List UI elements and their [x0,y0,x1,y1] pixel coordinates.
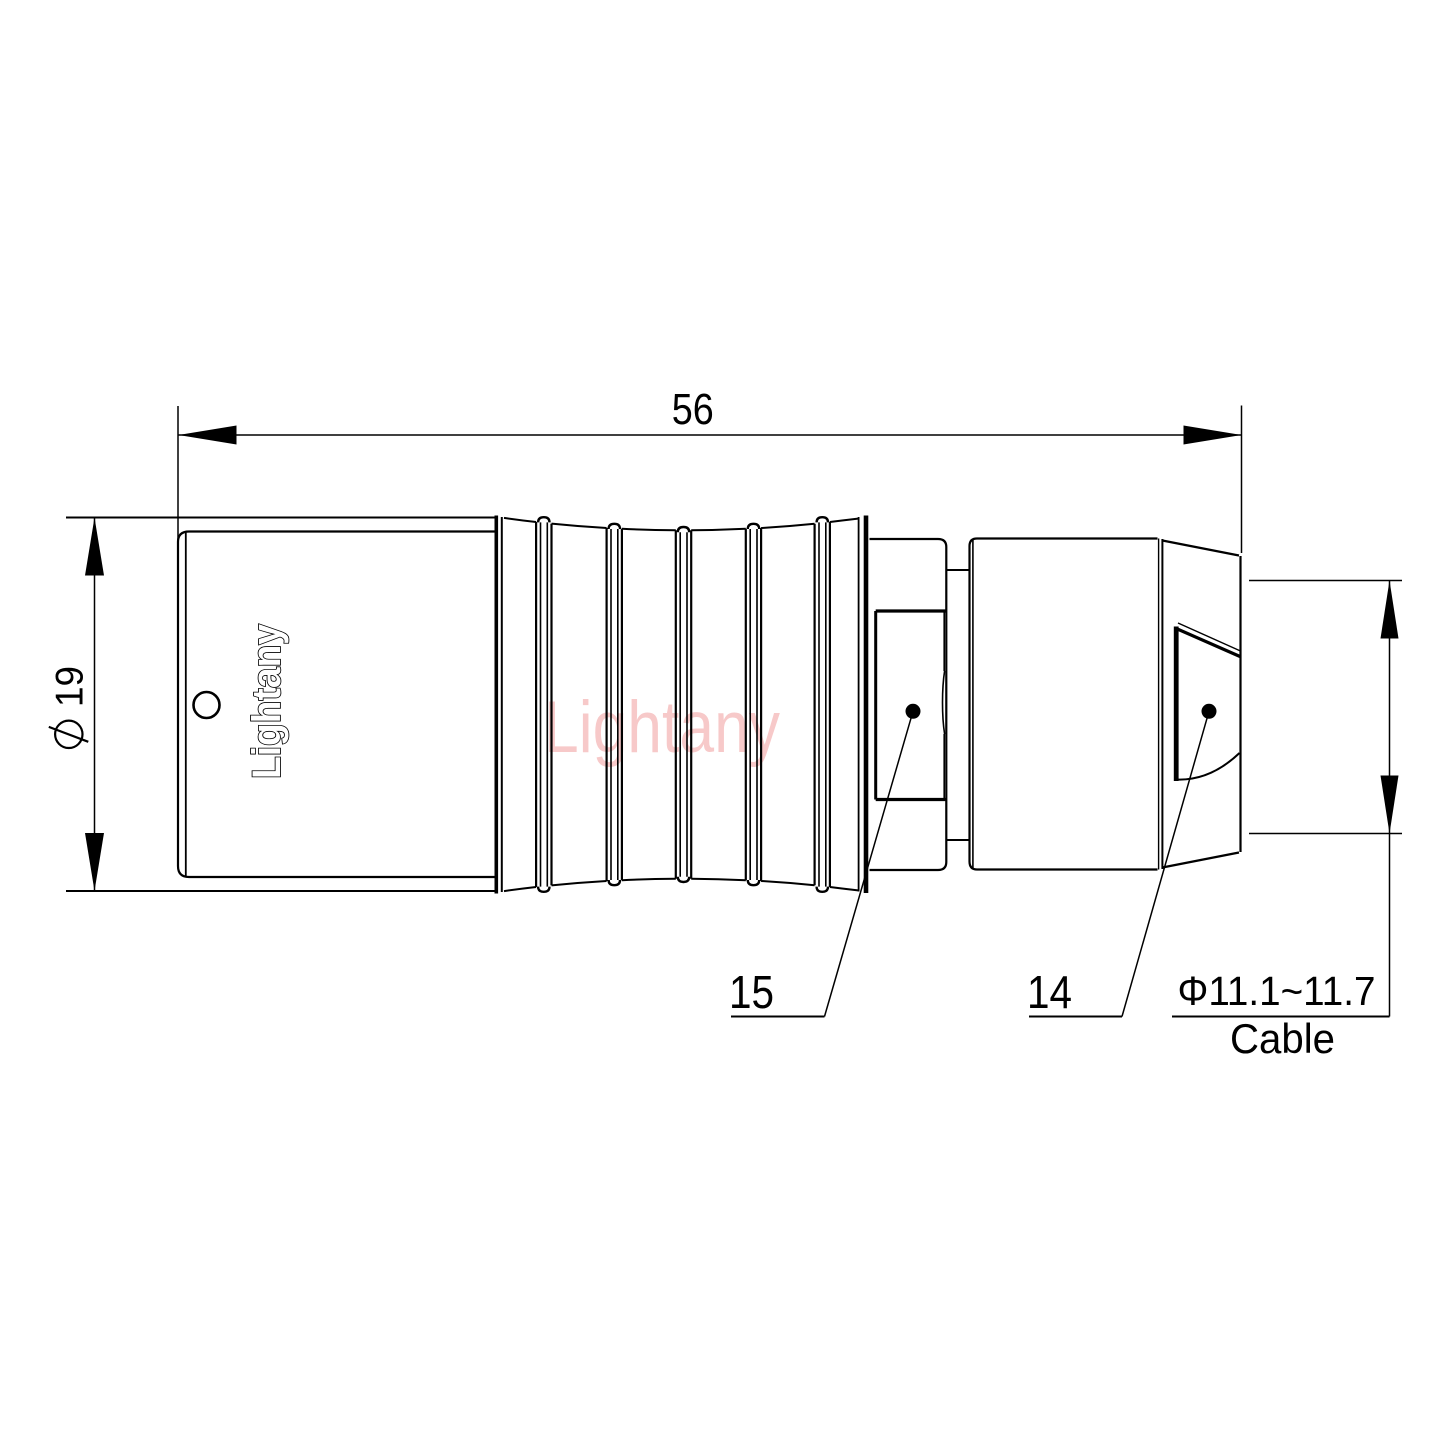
svg-text:15: 15 [729,966,774,1018]
svg-text:19: 19 [49,666,92,707]
svg-text:14: 14 [1027,966,1072,1018]
svg-text:56: 56 [672,385,714,434]
svg-text:Cable: Cable [1230,1015,1335,1062]
svg-text:Lightany: Lightany [245,623,289,779]
svg-text:Φ11.1~11.7: Φ11.1~11.7 [1178,968,1376,1014]
